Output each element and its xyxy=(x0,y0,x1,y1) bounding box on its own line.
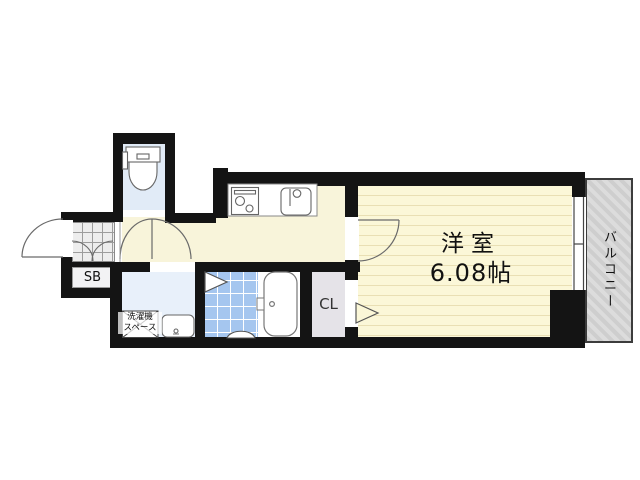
wall-segment xyxy=(165,213,216,223)
entrance-genkan-tile xyxy=(72,222,115,262)
western-room-area-label: 6.08帖 xyxy=(371,261,571,285)
main-room-door-opening xyxy=(345,217,359,260)
toilet-room-floor xyxy=(123,144,165,210)
laundry-space-label: 洗濯機 スペース xyxy=(118,312,162,334)
window-opening xyxy=(572,197,586,290)
kitchen-floor xyxy=(228,185,345,217)
laundry-space-label-line1: 洗濯機 xyxy=(127,312,153,322)
bathtub-area xyxy=(258,268,300,338)
shoe-box-label: SB xyxy=(72,271,113,284)
washroom-door-opening xyxy=(150,262,195,272)
laundry-space-label-line2: スペース xyxy=(124,323,157,333)
closet-label: CL xyxy=(312,297,345,312)
wall-segment xyxy=(61,288,115,298)
wall-segment xyxy=(213,172,585,186)
wall-segment xyxy=(113,133,123,222)
hallway-floor xyxy=(122,217,345,262)
wall-segment xyxy=(61,262,115,267)
bathroom-tile-floor xyxy=(205,268,258,338)
wall-segment xyxy=(165,133,175,218)
entry-door-arc-icon xyxy=(22,219,63,257)
closet-door-opening xyxy=(345,280,358,327)
western-room-name-label: 洋室 xyxy=(371,233,571,256)
balcony-label: バルコニー xyxy=(602,224,615,316)
wall-segment xyxy=(300,262,312,348)
wall-segment xyxy=(195,262,205,348)
wall-segment xyxy=(572,186,585,197)
entry-door-opening xyxy=(59,220,73,257)
floor-plan: 洋室 6.08帖 バルコニー CL SB 洗濯機 スペース xyxy=(0,0,640,480)
